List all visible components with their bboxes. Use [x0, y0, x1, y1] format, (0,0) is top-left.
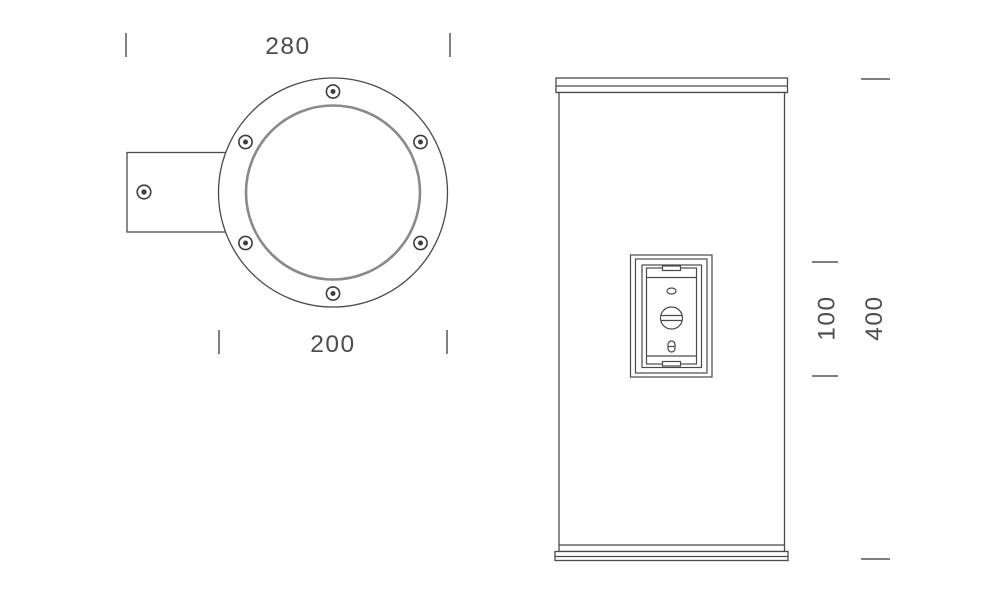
top-cap	[556, 78, 788, 93]
dim-flange-diameter-label: 200	[310, 331, 355, 358]
flange-screw-icon	[326, 85, 339, 98]
panel-bottom-notch	[663, 362, 681, 367]
dim-body-length-label: 400	[861, 295, 888, 340]
flange-screw-icon	[239, 236, 252, 249]
dim-body-length: 400	[861, 79, 890, 559]
luminaire-drawing: 280 200	[0, 0, 1000, 592]
dim-flange-diameter: 200	[219, 330, 447, 358]
flange-screw-icon	[326, 287, 339, 300]
panel-top-notch	[663, 266, 681, 271]
flange-screw-icon	[414, 236, 427, 249]
bracket-screw-icon	[137, 185, 151, 199]
side-view: 100 400	[555, 78, 890, 561]
dim-panel-height-label: 100	[814, 295, 841, 340]
dim-overall-width: 280	[126, 33, 450, 60]
dim-panel-height: 100	[812, 262, 841, 376]
flange-ring	[219, 78, 448, 307]
top-view: 280 200	[126, 33, 450, 358]
dim-overall-width-label: 280	[265, 33, 310, 60]
technical-drawing-canvas: 280 200	[0, 0, 1000, 592]
flange-screw-icon	[414, 135, 427, 148]
flange-screw-icon	[239, 135, 252, 148]
